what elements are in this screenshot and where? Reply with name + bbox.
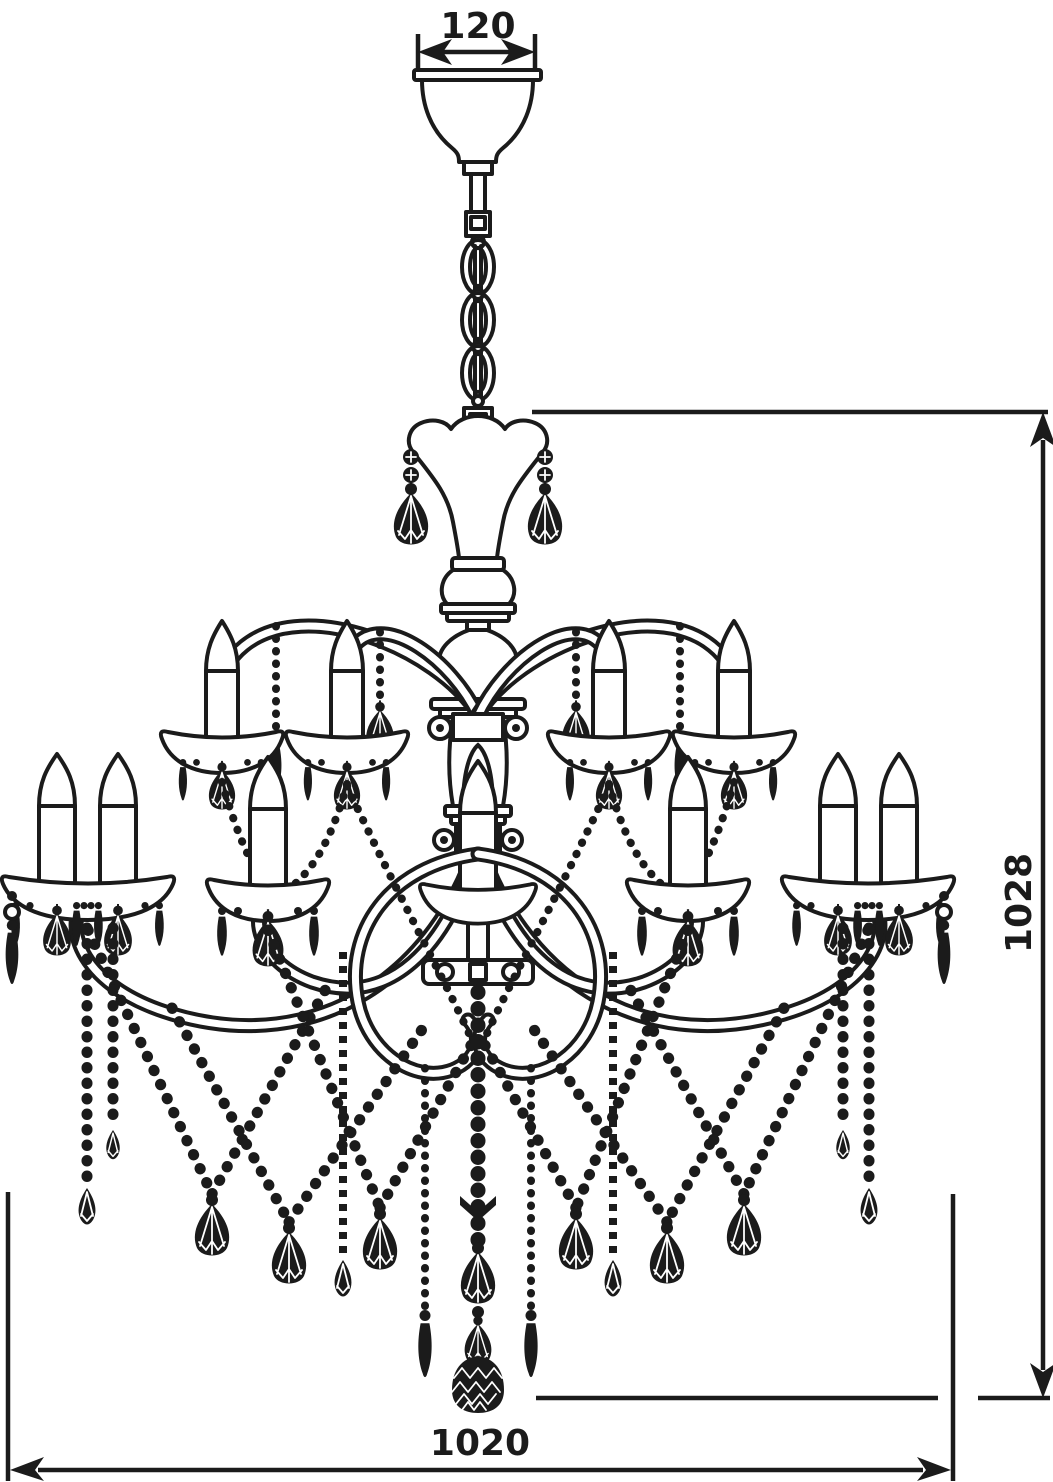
dim-bottom-label: 1020 (430, 1423, 530, 1464)
dimension-top-canopy-width: 120 (418, 6, 535, 70)
upper-arm-mount (429, 714, 527, 740)
dim-right-label: 1028 (999, 853, 1040, 953)
hanging-chain (462, 174, 494, 434)
ceiling-canopy (414, 70, 541, 174)
faceted-ball-finial (452, 1356, 504, 1413)
chandelier-drawing: 120 1028 1020 (0, 0, 1053, 1482)
chandelier-spec-sheet: 120 1028 1020 (0, 0, 1053, 1482)
